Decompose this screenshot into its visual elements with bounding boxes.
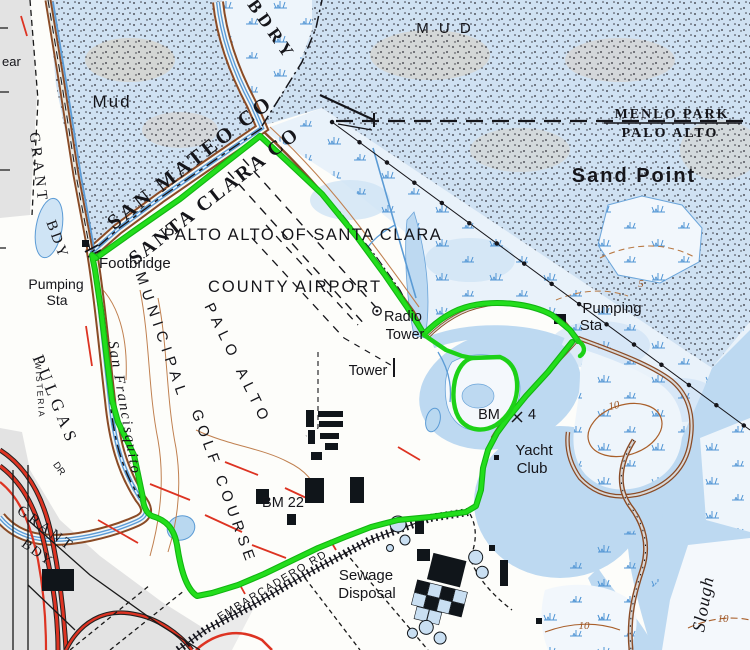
label-sewage-2: Disposal (338, 585, 396, 602)
label-contour-10-b: 10 (579, 620, 591, 632)
label-contour-10-c: 10 (718, 613, 730, 625)
label-yacht-2: Club (517, 460, 548, 477)
label-pumping-right-2: Sta (580, 317, 603, 334)
label-yacht-1: Yacht (515, 442, 553, 459)
label-palo-alto-city: PALO ALTO (622, 126, 719, 141)
label-tower: Tower (349, 363, 388, 379)
label-palto-alto-of-santa-clara: PALTO ALTO OF SANTA CLARA (164, 226, 443, 244)
label-menlo-park: MENLO PARK (614, 107, 729, 122)
label-bm22: BM 22 (262, 495, 304, 511)
label-mud-small: Mud (92, 92, 131, 111)
label-county-airport: COUNTY AIRPORT (208, 278, 382, 296)
label-bm4-bm: BM (478, 407, 500, 423)
label-pumping-left-1: Pumping (28, 276, 83, 292)
radio-tower-icon (373, 307, 381, 315)
label-pumping-right-1: Pumping (582, 300, 641, 317)
label-sand-point: Sand Point (572, 165, 696, 187)
label-radio-2: Tower (386, 327, 425, 343)
label-sewage-1: Sewage (339, 567, 393, 584)
label-bm4-4: 4 (528, 407, 536, 423)
label-pumping-left-2: Sta (46, 292, 67, 308)
topo-map-canvas[interactable]: ear Mud M U D BDRY GRANT BDY SAN MATEO C… (0, 0, 750, 650)
label-mud-large: M U D (416, 20, 474, 37)
label-ear: ear (2, 54, 21, 69)
label-footbridge: Footbridge (99, 255, 171, 272)
label-radio-1: Radio (384, 309, 422, 325)
label-contour-5: 5 (638, 278, 644, 290)
